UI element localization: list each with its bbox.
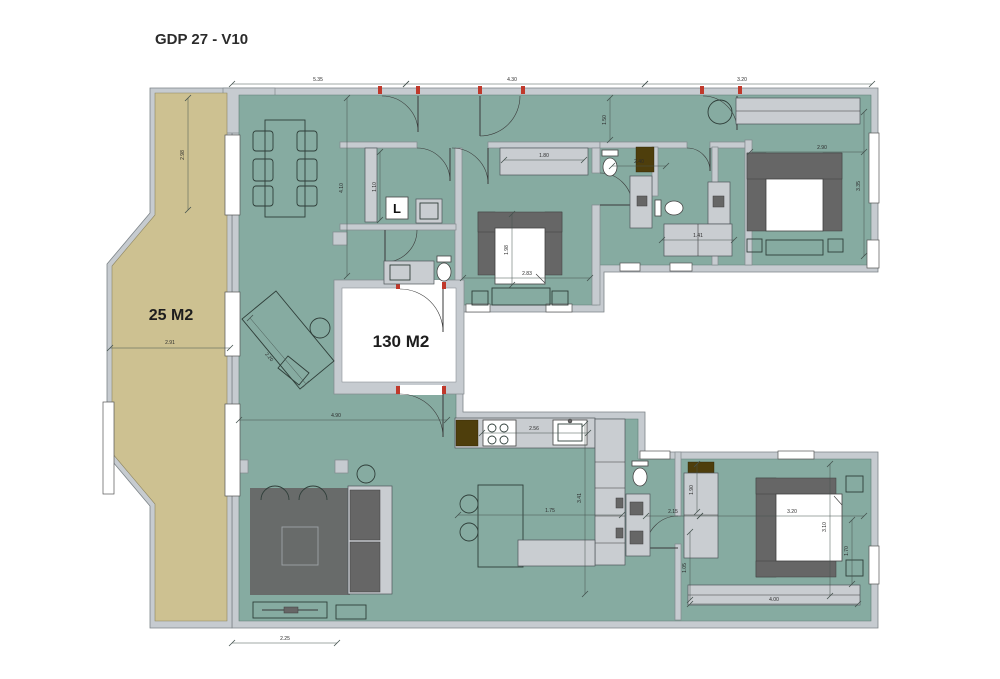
tv-mount xyxy=(284,607,298,613)
laundry-wall xyxy=(340,224,456,230)
dimension-label: 2.25 xyxy=(280,636,290,642)
door-jamb xyxy=(700,86,704,94)
sink xyxy=(630,502,643,515)
toilet xyxy=(665,201,683,215)
sofa-cushion xyxy=(350,542,380,592)
door-jamb xyxy=(442,386,446,394)
toilet xyxy=(437,263,451,281)
dimension-label: 1.80 xyxy=(539,153,549,159)
dimension-label: 5.35 xyxy=(313,77,323,83)
bedroom3-window xyxy=(778,451,814,459)
toilet-tank xyxy=(602,150,618,156)
bedroom1-right-wall xyxy=(592,148,600,173)
bathroom-window xyxy=(670,263,692,271)
bedroom3-window xyxy=(640,451,670,459)
dimension-label: 1.10 xyxy=(372,182,378,192)
terrace-window xyxy=(225,404,240,496)
dimension-label: 1.50 xyxy=(602,115,608,125)
terrace-window xyxy=(225,135,240,215)
sink xyxy=(713,196,724,207)
terrace-window xyxy=(225,292,240,356)
bedroom3-side-window xyxy=(869,546,879,584)
rug xyxy=(250,488,350,595)
toilet xyxy=(603,158,617,176)
dimension-label: 1.70 xyxy=(844,546,850,556)
door-opening xyxy=(400,385,443,395)
terrace-floor xyxy=(112,93,227,621)
lower-counter xyxy=(518,540,595,566)
corridor-wall xyxy=(488,142,600,148)
dimension-label: 3.20 xyxy=(737,77,747,83)
toilet-tank xyxy=(632,461,648,466)
apartment-area-label: 130 M2 xyxy=(373,332,430,351)
bed-mattress xyxy=(766,179,823,231)
bed-headboard xyxy=(747,153,842,179)
laundry-label: L xyxy=(393,201,401,216)
cabinet-handle xyxy=(616,498,623,508)
sink xyxy=(637,196,647,206)
dimension-label: 3.35 xyxy=(856,181,862,191)
door-jamb xyxy=(378,86,382,94)
dimension-label: 2.83 xyxy=(522,271,532,277)
bathroom-window xyxy=(620,263,640,271)
dimension-label: 4.10 xyxy=(339,183,345,193)
bedroom3-left-wall xyxy=(675,452,681,516)
dimension-label: 2.15 xyxy=(668,509,678,515)
sofa-cushion xyxy=(350,490,380,540)
door-jamb xyxy=(416,86,420,94)
door-jamb xyxy=(396,386,400,394)
dimension-label: 2.40 xyxy=(634,159,644,165)
terrace-side-window xyxy=(103,402,114,494)
counter-accent xyxy=(456,420,478,446)
dimension-label: 3.10 xyxy=(822,522,828,532)
door-jamb xyxy=(521,86,525,94)
faucet xyxy=(568,419,572,423)
dimension-label: 1.75 xyxy=(545,508,555,514)
bedroom3-left-wall xyxy=(675,544,681,620)
column xyxy=(333,232,347,245)
bedroom1-right-wall xyxy=(592,205,600,305)
dimension-label: 1.98 xyxy=(504,245,510,255)
bed-mattress xyxy=(776,494,842,561)
dimension-label: 4.30 xyxy=(507,77,517,83)
dimension-label: 2.90 xyxy=(817,145,827,151)
toilet xyxy=(633,468,647,486)
bedroom2-window xyxy=(867,240,879,268)
dimension-label: 2.91 xyxy=(165,340,175,346)
floor-plan-page: L xyxy=(0,0,1000,679)
cabinet-accent xyxy=(688,462,714,473)
column xyxy=(335,460,348,473)
floor-plan-drawing: L xyxy=(0,0,1000,679)
dimension-label: 1.90 xyxy=(689,485,695,495)
toilet-tank xyxy=(437,256,451,262)
plan-title: GDP 27 - V10 xyxy=(155,31,248,48)
dimension-label: 1.41 xyxy=(693,233,703,239)
dimension-label: 4.90 xyxy=(331,413,341,419)
dimension-label: 4.00 xyxy=(769,597,779,603)
bed-frame xyxy=(756,478,836,494)
door-jamb xyxy=(442,282,446,289)
door-jamb xyxy=(478,86,482,94)
dimension-label: 2.56 xyxy=(529,426,539,432)
dimension-label: 2.98 xyxy=(180,150,186,160)
sink xyxy=(630,531,643,544)
dimension-label: 3.20 xyxy=(787,509,797,515)
door-jamb xyxy=(738,86,742,94)
bedroom2-window xyxy=(869,133,879,203)
cabinet-handle xyxy=(616,528,623,538)
terrace-area-label: 25 M2 xyxy=(149,307,194,324)
toilet-tank xyxy=(655,200,661,216)
bed-frame xyxy=(756,561,836,577)
dimension-label: 1.05 xyxy=(682,563,688,573)
dimension-label: 3.41 xyxy=(577,493,583,503)
corridor-wall xyxy=(340,142,417,148)
vanity xyxy=(384,261,434,284)
